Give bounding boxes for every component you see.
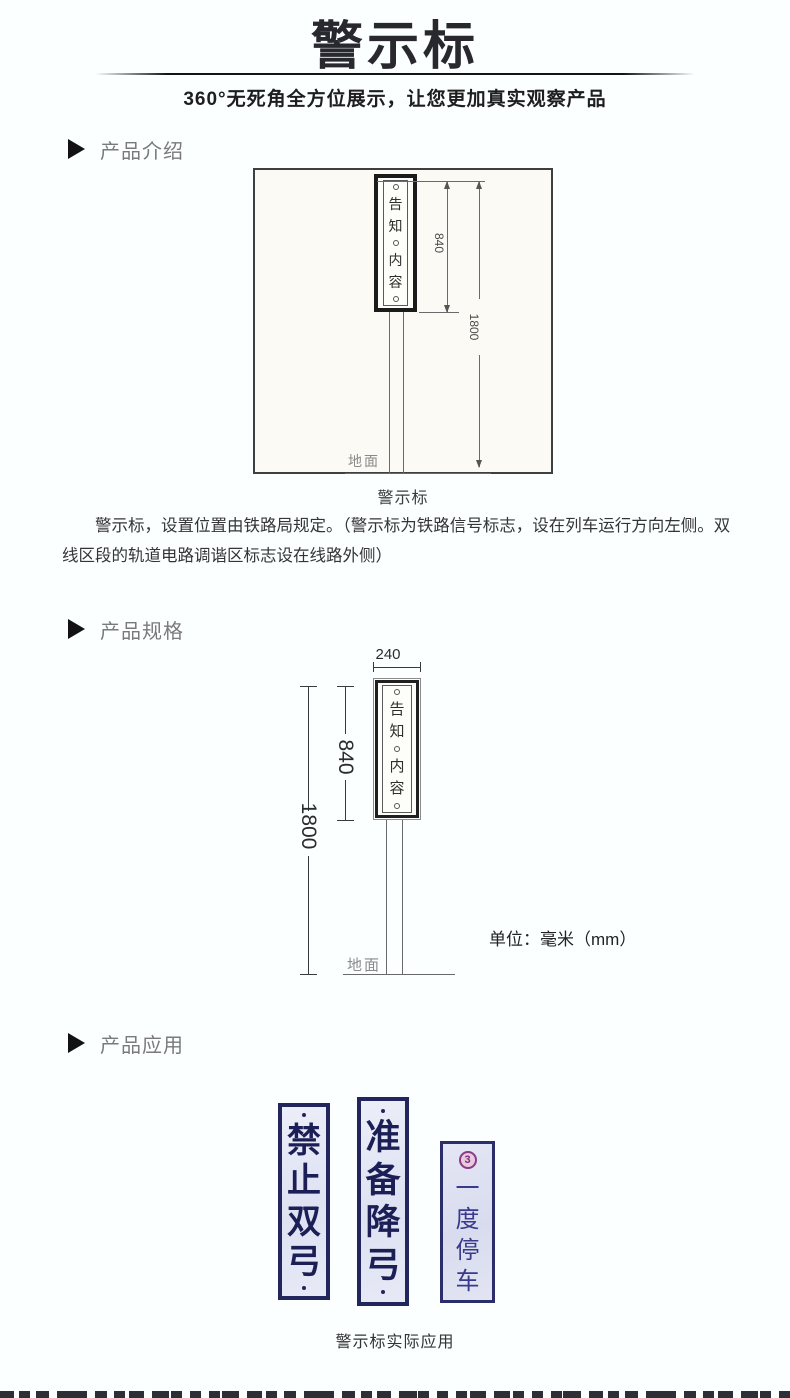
bolt-hole-icon: [394, 746, 400, 752]
triangle-bullet-icon: [68, 139, 85, 159]
section-label: 产品应用: [100, 1029, 184, 1058]
sign-char: 停: [456, 1238, 480, 1262]
plate-char: 知: [389, 724, 404, 739]
extension-line: [419, 312, 459, 313]
plate-char: 告: [389, 197, 403, 211]
plate-char: 内: [389, 759, 404, 774]
sign-plate-band: 告 知 内 容: [375, 680, 419, 818]
bolt-dot-icon: [302, 1286, 306, 1290]
bolt-dot-icon: [302, 1113, 306, 1117]
bottom-dashed-strip: [0, 1391, 790, 1398]
arrow-down-icon: [476, 460, 482, 468]
intro-diagram: 告 知 内 容 地面 840 1800: [253, 168, 553, 474]
page-subtitle: 360°无死角全方位展示，让您更加真实观察产品: [0, 84, 790, 111]
dimension-line-840: [447, 182, 448, 312]
dimension-label-240: 240: [362, 646, 414, 663]
badge-number: 3: [464, 1155, 470, 1166]
sign-char: 双: [287, 1205, 321, 1239]
dimension-line-240: [373, 667, 421, 668]
arrow-down-icon: [444, 305, 450, 313]
section-label: 产品规格: [100, 615, 184, 644]
dimension-label-1800: 1800: [467, 299, 481, 355]
product-page: 警示标 360°无死角全方位展示，让您更加真实观察产品 产品介绍 告 知 内 容…: [0, 0, 790, 1398]
bolt-hole-icon: [394, 803, 400, 809]
sign-char: 弓: [365, 1248, 400, 1283]
plate-char: 告: [389, 702, 404, 717]
sign-char: 禁: [287, 1124, 321, 1158]
diagram-caption: 警示标: [253, 484, 553, 508]
plate-char: 容: [389, 275, 403, 289]
dimension-label-1800: 1800: [296, 791, 320, 861]
title-divider: [95, 73, 695, 75]
bolt-hole-icon: [393, 184, 399, 190]
dimension-line-840: [345, 780, 346, 820]
page-title: 警示标: [0, 4, 790, 79]
app-sign-zhunbeijianggong: 准 备 降 弓: [357, 1097, 409, 1306]
sign-char: 车: [456, 1269, 480, 1293]
dimension-tick: [373, 662, 374, 672]
bolt-dot-icon: [381, 1290, 385, 1294]
sign-char: 备: [365, 1163, 400, 1198]
badge-circle-icon: 3: [459, 1151, 477, 1169]
intro-paragraph: 警示标，设置位置由铁路局规定。（警示标为铁路信号标志，设在列车运行方向左侧。双线…: [62, 511, 734, 571]
dimension-cap: [337, 820, 354, 821]
extension-line: [377, 181, 485, 182]
ground-label: 地面: [347, 954, 381, 975]
sign-char: 准: [365, 1120, 400, 1155]
sign-pole: [386, 820, 403, 974]
sign-char: 弓: [287, 1245, 321, 1279]
section-header-app: 产品应用: [68, 1031, 184, 1055]
application-caption: 警示标实际应用: [0, 1328, 790, 1352]
sign-plate: 告 知 内 容: [373, 678, 421, 820]
sign-pole: [389, 312, 404, 473]
ground-label: 地面: [348, 451, 380, 471]
sign-plate-inner: 告 知 内 容: [382, 685, 412, 813]
dimension-label-840: 840: [432, 223, 446, 263]
bolt-hole-icon: [393, 240, 399, 246]
arrow-up-icon: [444, 181, 450, 189]
ground-line: [345, 473, 491, 474]
dimension-line-1800: [308, 856, 309, 974]
unit-note: 单位：毫米（mm）: [489, 925, 636, 950]
sign-char: 降: [365, 1205, 400, 1240]
sign-plate-inner: 告 知 内 容: [383, 180, 408, 306]
app-sign-jinzhishuanggong: 禁 止 双 弓: [278, 1103, 330, 1300]
bolt-hole-icon: [394, 689, 400, 695]
sign-char: 止: [287, 1164, 321, 1198]
dimension-label-840: 840: [333, 726, 357, 788]
sign-char: 度: [456, 1207, 480, 1231]
triangle-bullet-icon: [68, 1033, 85, 1053]
section-header-spec: 产品规格: [68, 617, 184, 641]
section-label: 产品介绍: [100, 135, 184, 164]
bolt-hole-icon: [393, 296, 399, 302]
plate-char: 容: [389, 781, 404, 796]
sign-plate: 告 知 内 容: [374, 174, 417, 312]
section-header-intro: 产品介绍: [68, 137, 184, 161]
arrow-up-icon: [476, 181, 482, 189]
dimension-tick: [420, 662, 421, 672]
bolt-dot-icon: [381, 1109, 385, 1113]
triangle-bullet-icon: [68, 619, 85, 639]
app-sign-yidutingche: 3 一 度 停 车: [440, 1141, 495, 1303]
dimension-cap: [300, 974, 317, 975]
sign-char: 一: [456, 1176, 480, 1200]
plate-char: 知: [389, 219, 403, 233]
plate-char: 内: [389, 253, 403, 267]
